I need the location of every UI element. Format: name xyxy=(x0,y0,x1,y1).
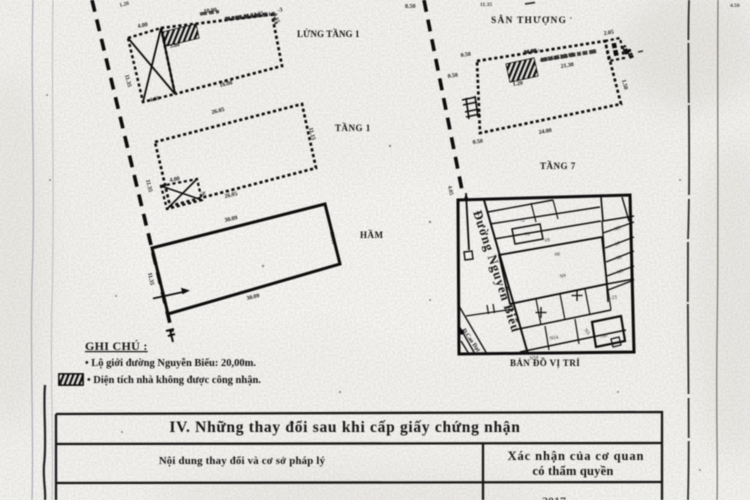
svg-text:• Diện tích nhà không được côn: • Diện tích nhà không được công nhận. xyxy=(87,375,261,386)
svg-text:SÂN THƯỢNG: SÂN THƯỢNG xyxy=(491,14,567,26)
svg-text:IV. Những thay đổi sau khi cấp: IV. Những thay đổi sau khi cấp giấy chứn… xyxy=(169,419,520,436)
svg-text:0.50: 0.50 xyxy=(405,4,416,10)
svg-text:LỬNG TẦNG 1: LỬNG TẦNG 1 xyxy=(297,29,360,39)
svg-text:• Lộ giới đường Nguyễn Biểu: 2: • Lộ giới đường Nguyễn Biểu: 20,00m. xyxy=(85,358,256,369)
svg-text:có thẩm quyền: có thẩm quyền xyxy=(532,464,613,478)
svg-text:TẦNG 1: TẦNG 1 xyxy=(335,123,371,133)
svg-text:GHI CHÚ :: GHI CHÚ : xyxy=(85,339,148,353)
svg-text:Nội dung thay đổi và cơ sở phá: Nội dung thay đổi và cơ sở pháp lý xyxy=(159,455,326,467)
svg-text:HẦM: HẦM xyxy=(360,230,384,240)
svg-text:4.50: 4.50 xyxy=(730,3,740,9)
svg-text:11.35: 11.35 xyxy=(480,2,492,8)
svg-text:..2017: ..2017 xyxy=(536,494,566,500)
svg-text:TẦNG 7: TẦNG 7 xyxy=(540,161,576,171)
svg-text:Xác nhận của cơ quan: Xác nhận của cơ quan xyxy=(508,449,645,463)
svg-text:BẢN ĐỒ VỊ TRÍ: BẢN ĐỒ VỊ TRÍ xyxy=(510,358,580,368)
